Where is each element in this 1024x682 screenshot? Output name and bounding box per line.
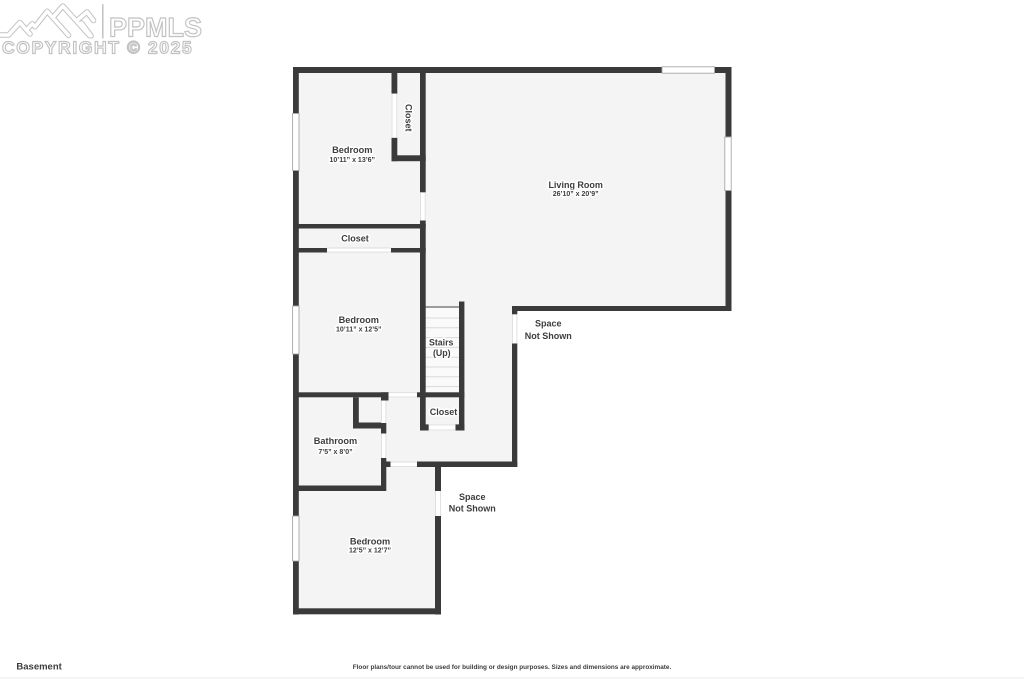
svg-text:Bathroom: Bathroom	[314, 436, 357, 446]
svg-text:Basement: Basement	[16, 662, 62, 673]
svg-text:COPYRIGHT © 2025: COPYRIGHT © 2025	[2, 38, 193, 58]
svg-text:Closet: Closet	[430, 407, 458, 417]
svg-text:Closet: Closet	[341, 233, 369, 243]
svg-text:Bedroom: Bedroom	[332, 145, 372, 155]
svg-text:10’11” x 12’5”: 10’11” x 12’5”	[336, 326, 382, 333]
svg-text:Not Shown: Not Shown	[449, 504, 496, 514]
svg-text:Living Room: Living Room	[548, 180, 603, 190]
svg-text:Bedroom: Bedroom	[339, 315, 379, 325]
svg-text:Not Shown: Not Shown	[525, 331, 572, 341]
svg-text:Space: Space	[535, 319, 562, 329]
svg-text:(Up): (Up)	[433, 348, 451, 358]
svg-text:Space: Space	[459, 492, 486, 502]
svg-text:12’5” x 12’7”: 12’5” x 12’7”	[349, 548, 391, 555]
svg-text:7’5” x 8’0”: 7’5” x 8’0”	[318, 449, 352, 456]
svg-text:10’11” x 13’6”: 10’11” x 13’6”	[330, 157, 376, 164]
svg-text:Floor plans/tour cannot be use: Floor plans/tour cannot be used for buil…	[353, 664, 672, 671]
svg-text:Bedroom: Bedroom	[350, 536, 390, 546]
svg-text:Stairs: Stairs	[429, 338, 454, 348]
svg-text:26’10” x 20’9”: 26’10” x 20’9”	[553, 191, 599, 198]
svg-text:Closet: Closet	[403, 104, 413, 132]
